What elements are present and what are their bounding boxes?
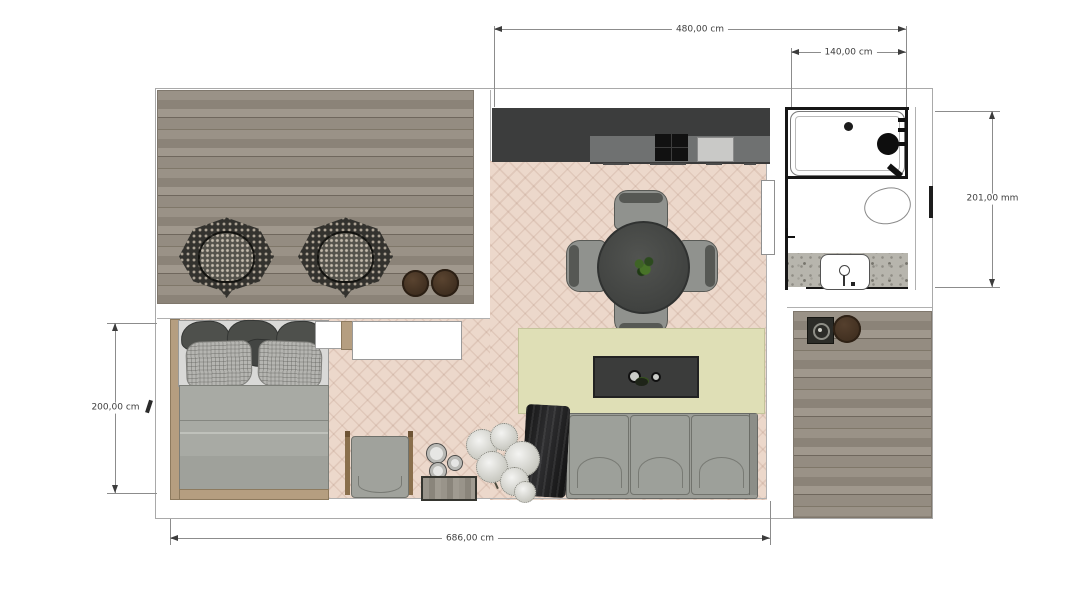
- decor-plant: [635, 378, 648, 386]
- cooktop-icon: [655, 134, 688, 161]
- dimension-bottom-label: 686,00 cm: [442, 533, 498, 544]
- tub-fixture: [898, 128, 905, 132]
- patio-deck: [793, 311, 932, 518]
- faucet-stem: [843, 275, 845, 286]
- kitchen-upper-band: [590, 108, 770, 136]
- dimension-left-label: 200,00 cm: [87, 403, 143, 414]
- wardrobe: [352, 321, 462, 360]
- coffee-table-icon: [593, 356, 699, 398]
- wicker-seat: [319, 233, 372, 281]
- dimension-bottom: 686,00 cm: [170, 538, 770, 539]
- cabinet-handle: [744, 163, 756, 165]
- dining-table-icon: [597, 221, 690, 314]
- vase-icon: [426, 443, 447, 464]
- wicker-lounge-chair-icon: [298, 215, 393, 298]
- dimension-right: 201,00 mm: [992, 111, 993, 287]
- extension-line: [791, 48, 792, 107]
- extension-line: [935, 287, 1000, 288]
- hinge-mark: [786, 236, 795, 238]
- extension-line: [906, 26, 907, 107]
- dimension-top: 480,00 cm: [494, 29, 906, 30]
- cabinet-handle: [603, 163, 629, 165]
- dimension-left: 200,00 cm: [115, 323, 116, 493]
- door-leaf: [761, 180, 775, 255]
- side-table-icon: [833, 315, 861, 343]
- dried-plant-icon: [460, 423, 540, 501]
- door-mark: [145, 400, 153, 414]
- wall-line: [766, 161, 767, 181]
- decor-bowl: [651, 372, 661, 382]
- washbasin-icon: [820, 254, 870, 290]
- pillow-patterned-icon: [185, 340, 253, 388]
- shower-head-icon: [877, 133, 899, 155]
- faucet-dot: [851, 282, 855, 286]
- wall-line: [490, 90, 491, 161]
- cabinet-handle: [706, 163, 722, 165]
- bathtub-icon: [790, 111, 905, 176]
- tub-fixture: [898, 118, 905, 122]
- rocking-chair-icon: [345, 431, 413, 497]
- bathroom-wall-top: [785, 107, 909, 110]
- duvet: [179, 385, 329, 491]
- wall-line: [915, 107, 916, 290]
- dimension-top-right-label: 140,00 cm: [820, 47, 876, 58]
- dimension-top-right: 140,00 cm: [791, 52, 906, 53]
- bathroom-wall-mid: [786, 176, 908, 179]
- table-plant-icon: [632, 255, 656, 277]
- fire-pit-icon: [807, 317, 834, 344]
- wicker-lounge-chair-icon: [179, 215, 274, 298]
- pouf-icon: [431, 269, 459, 297]
- extension-line: [494, 26, 495, 107]
- wicker-seat: [200, 233, 253, 281]
- kitchen-tall-cabinet: [492, 108, 590, 162]
- dimension-right-label: 201,00 mm: [963, 194, 1023, 205]
- pillow-patterned-icon: [257, 340, 323, 388]
- floor-plan-canvas: 480,00 cm 140,00 cm 201,00 mm 200,00 cm …: [0, 0, 1082, 610]
- bathroom-wall-right: [905, 107, 908, 179]
- sofa-arm: [749, 414, 757, 495]
- terrace-deck: [157, 90, 474, 304]
- wall-line: [787, 307, 932, 308]
- sofa-icon: [566, 413, 758, 499]
- extension-line: [770, 501, 771, 545]
- dimension-top-label: 480,00 cm: [672, 24, 728, 35]
- extension-line: [170, 519, 171, 545]
- window-bar: [929, 186, 933, 218]
- extension-line: [107, 493, 157, 494]
- tub-fixture: [898, 142, 905, 146]
- tub-drain: [844, 122, 853, 131]
- pouf-icon: [402, 270, 429, 297]
- wall-line: [766, 253, 767, 499]
- kitchen-sink-icon: [697, 137, 734, 162]
- bed-foot-rail: [179, 489, 329, 500]
- wall-line: [157, 318, 490, 319]
- nightstand: [315, 321, 343, 349]
- cabinet-handle: [650, 163, 686, 165]
